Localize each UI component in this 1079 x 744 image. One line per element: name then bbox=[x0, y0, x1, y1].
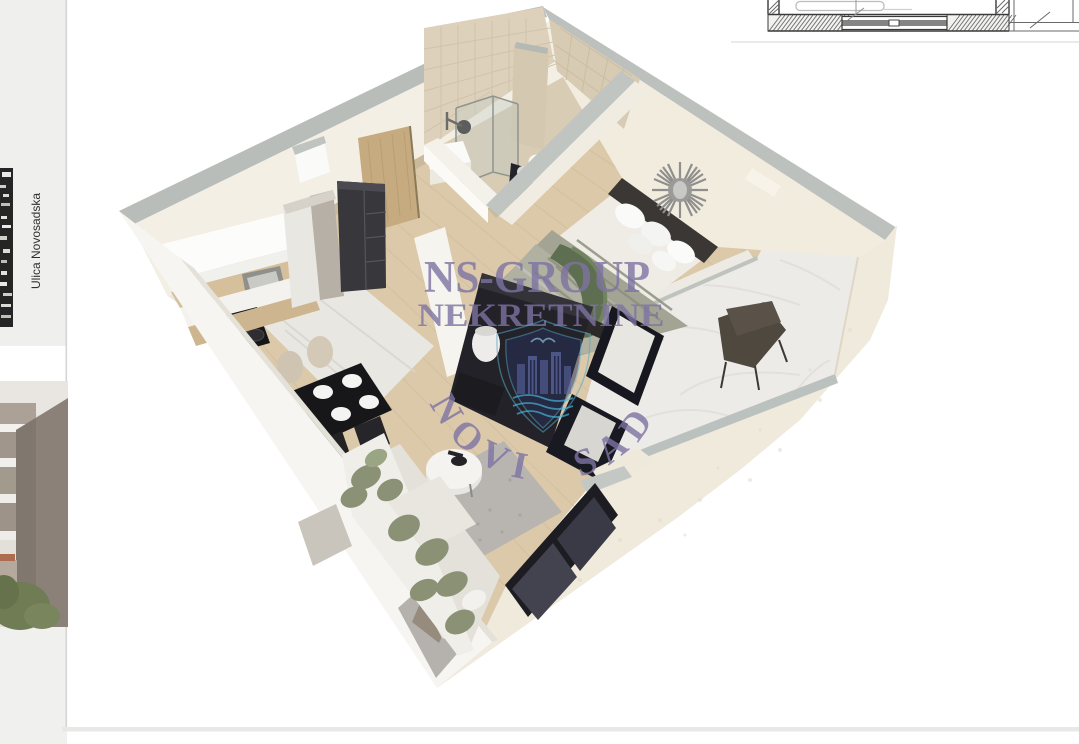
svg-text:Ulica Novosadska: Ulica Novosadska bbox=[29, 193, 43, 289]
svg-text:NS-GROUP: NS-GROUP bbox=[424, 252, 650, 302]
